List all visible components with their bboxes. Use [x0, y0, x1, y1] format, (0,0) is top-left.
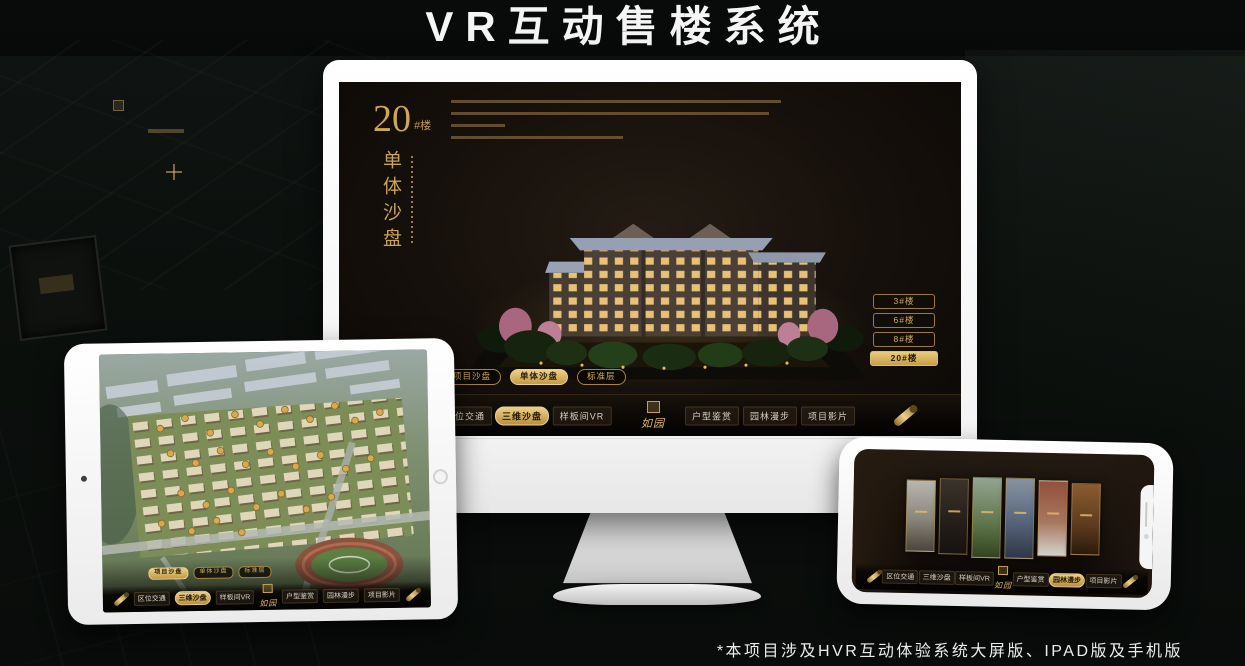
description-text	[451, 100, 781, 148]
scroll-icon[interactable]	[866, 569, 882, 583]
tab-project-sandbox[interactable]: 项目沙盘	[148, 567, 188, 580]
floor-number: 20	[373, 100, 411, 138]
seal-icon	[263, 584, 273, 593]
tablet-mode-tab-group: 项目沙盘 单体沙盘 标准层	[148, 566, 271, 580]
floor-button-group: 3#楼 6#楼 8#楼 20#楼	[869, 294, 939, 366]
gallery-card-courtyard[interactable]	[905, 480, 936, 553]
nav-item-garden-walk[interactable]: 园林漫步	[1049, 573, 1085, 588]
home-button[interactable]	[433, 469, 448, 484]
nav-item-unit-plans[interactable]: 户型鉴赏	[685, 406, 739, 425]
nav-item-location[interactable]: 区位交通	[882, 569, 918, 584]
floor-button-3[interactable]: 3#楼	[873, 294, 935, 309]
gallery-card-interior[interactable]	[938, 478, 969, 555]
description-line	[451, 112, 769, 115]
tab-standard-floor[interactable]: 标准层	[577, 369, 626, 385]
tablet-screen: 项目沙盘 单体沙盘 标准层 区位交通 三维沙盘 样板间VR 如园 户型鉴赏 园林…	[99, 349, 431, 612]
scroll-icon[interactable]	[113, 592, 128, 606]
gallery-card-lobby[interactable]	[1070, 483, 1101, 556]
nav-item-location[interactable]: 区位交通	[134, 591, 170, 606]
building-3d-render[interactable]	[459, 160, 869, 395]
star-icon	[166, 164, 182, 180]
floor-button-8[interactable]: 8#楼	[873, 332, 935, 347]
nav-item-project-film[interactable]: 项目影片	[801, 406, 855, 425]
phone-screen: 区位交通 三维沙盘 样板间VR 如园 户型鉴赏 园林漫步 项目影片	[852, 449, 1155, 598]
map-marker-icon	[113, 100, 124, 111]
gallery-card-building[interactable]	[1004, 477, 1035, 559]
vertical-caption-decoration	[411, 156, 413, 244]
nav-item-3d-sandbox[interactable]: 三维沙盘	[495, 406, 549, 425]
floor-heading: 20 #楼	[373, 100, 431, 138]
brand-logo: 如园	[259, 584, 277, 610]
phone-notch	[1139, 484, 1154, 568]
monitor-base	[553, 584, 761, 605]
nav-item-showroom-vr[interactable]: 样板间VR	[955, 571, 994, 586]
gallery-card-autumn[interactable]	[1037, 480, 1068, 557]
background-plaque	[8, 235, 107, 341]
description-line	[451, 124, 505, 127]
gallery-card-landscape[interactable]	[971, 477, 1002, 559]
map-label	[148, 129, 184, 133]
nav-item-showroom-vr[interactable]: 样板间VR	[215, 590, 254, 605]
phone-device: 区位交通 三维沙盘 样板间VR 如园 户型鉴赏 园林漫步 项目影片	[836, 437, 1173, 611]
scroll-icon[interactable]	[892, 404, 917, 427]
tablet-device: 项目沙盘 单体沙盘 标准层 区位交通 三维沙盘 样板间VR 如园 户型鉴赏 园林…	[64, 338, 458, 625]
monitor-stand	[557, 511, 758, 593]
nav-item-project-film[interactable]: 项目影片	[364, 588, 400, 603]
scene-gallery	[905, 475, 1101, 560]
tab-standard-floor[interactable]: 标准层	[238, 566, 271, 579]
tab-single-sandbox[interactable]: 单体沙盘	[193, 566, 233, 579]
nav-item-3d-sandbox[interactable]: 三维沙盘	[919, 570, 955, 585]
poster-stage: VR互动售楼系统 20 #楼 单体沙盘	[0, 0, 1245, 666]
scroll-icon[interactable]	[405, 588, 420, 602]
nav-item-unit-plans[interactable]: 户型鉴赏	[1012, 572, 1048, 587]
floor-button-20[interactable]: 20#楼	[870, 351, 938, 366]
camera-icon	[81, 476, 87, 482]
nav-item-garden-walk[interactable]: 园林漫步	[323, 588, 359, 603]
brand-name: 如园	[641, 417, 665, 430]
floor-button-6[interactable]: 6#楼	[873, 313, 935, 328]
brand-logo: 如园	[994, 566, 1013, 592]
tab-single-sandbox[interactable]: 单体沙盘	[510, 369, 568, 385]
brand-name: 如园	[259, 599, 277, 608]
footnote-text: *本项目涉及HVR互动体验系统大屏版、IPAD版及手机版	[717, 637, 1183, 661]
description-line	[451, 136, 623, 139]
nav-item-project-film[interactable]: 项目影片	[1085, 574, 1121, 589]
tablet-navbar: 区位交通 三维沙盘 样板间VR 如园 户型鉴赏 园林漫步 项目影片	[103, 581, 431, 612]
floor-suffix: #楼	[411, 117, 431, 138]
nav-item-3d-sandbox[interactable]: 三维沙盘	[175, 591, 211, 606]
mode-tab-group: 项目沙盘 单体沙盘 标准层	[443, 369, 626, 385]
description-line	[451, 100, 781, 103]
nav-item-unit-plans[interactable]: 户型鉴赏	[282, 589, 318, 604]
section-title-vertical: 单体沙盘	[377, 150, 404, 265]
camera-icon	[1144, 533, 1149, 538]
page-title: VR互动售楼系统	[0, 1, 1245, 53]
brand-logo: 如园	[641, 401, 665, 431]
speaker-icon	[1145, 501, 1148, 526]
nav-item-showroom-vr[interactable]: 样板间VR	[553, 406, 612, 425]
seal-icon	[998, 566, 1008, 575]
brand-name: 如园	[994, 581, 1012, 590]
nav-item-garden-walk[interactable]: 园林漫步	[743, 406, 797, 425]
scroll-icon[interactable]	[1122, 575, 1138, 589]
seal-icon	[647, 401, 660, 413]
